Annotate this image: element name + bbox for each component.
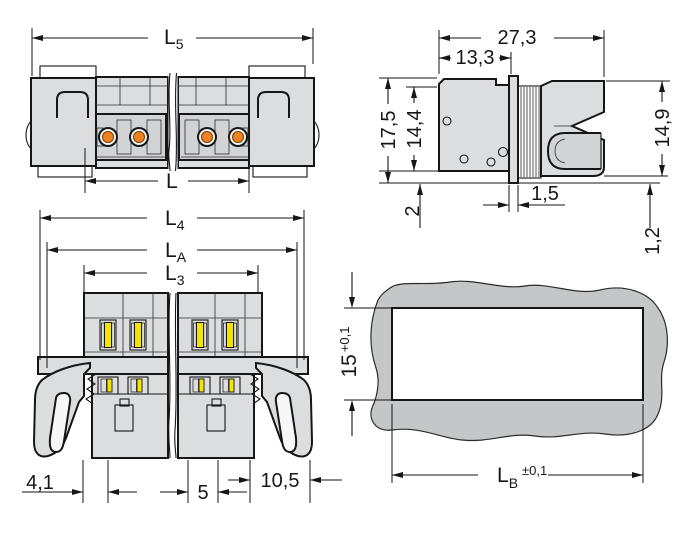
dim-label-15: 15+0,1 xyxy=(337,326,361,377)
push-button-orange xyxy=(202,132,213,143)
side-view-left-housing xyxy=(439,79,509,171)
panel-cutout-rect xyxy=(392,308,643,400)
drawing-svg: L5 L xyxy=(0,0,698,544)
dim-label-17-5: 17,5 xyxy=(378,111,400,150)
dim-label-13-3: 13,3 xyxy=(456,47,495,69)
side-view: 27,3 13,3 17,5 14,4 14,9 2 xyxy=(378,27,674,255)
technical-drawing-canvas: L5 L xyxy=(0,0,698,544)
dim-label-5: 5 xyxy=(197,482,208,504)
dim-label-l4: L4 xyxy=(165,207,185,233)
dim-label-14-4: 14,4 xyxy=(404,110,426,149)
dim-label-14-9: 14,9 xyxy=(652,109,674,148)
front-view-upper-right xyxy=(178,293,262,357)
push-button-orange xyxy=(103,132,114,143)
dim-label-l5: L5 xyxy=(164,26,184,52)
dim-label-1-2: 1,2 xyxy=(642,227,664,255)
front-view: L4 LA L3 4,1 5 xyxy=(22,207,342,504)
dim-label-l: L xyxy=(166,170,178,193)
front-view-upper-left xyxy=(84,293,168,357)
dim-label-l3: L3 xyxy=(165,262,185,288)
side-view-cavity xyxy=(548,133,601,169)
dim-label-2: 2 xyxy=(402,205,424,216)
front-view-lower-left xyxy=(92,374,168,458)
dim-label-1-5: 1,5 xyxy=(531,183,559,205)
front-view-lower-right xyxy=(178,374,254,458)
top-view: L5 L xyxy=(26,26,319,193)
push-button-orange xyxy=(233,132,244,143)
side-view-ribs xyxy=(518,86,541,178)
dim-label-lb: LB±0,1 xyxy=(497,463,547,491)
dim-label-4-1: 4,1 xyxy=(26,472,54,494)
dim-label-27-3: 27,3 xyxy=(498,27,537,49)
side-view-flange xyxy=(509,76,518,183)
break-line xyxy=(175,293,176,458)
cutout-view: 15+0,1 LB±0,1 xyxy=(337,272,667,491)
dim-label-10-5: 10,5 xyxy=(261,470,300,492)
push-button-orange xyxy=(134,132,145,143)
